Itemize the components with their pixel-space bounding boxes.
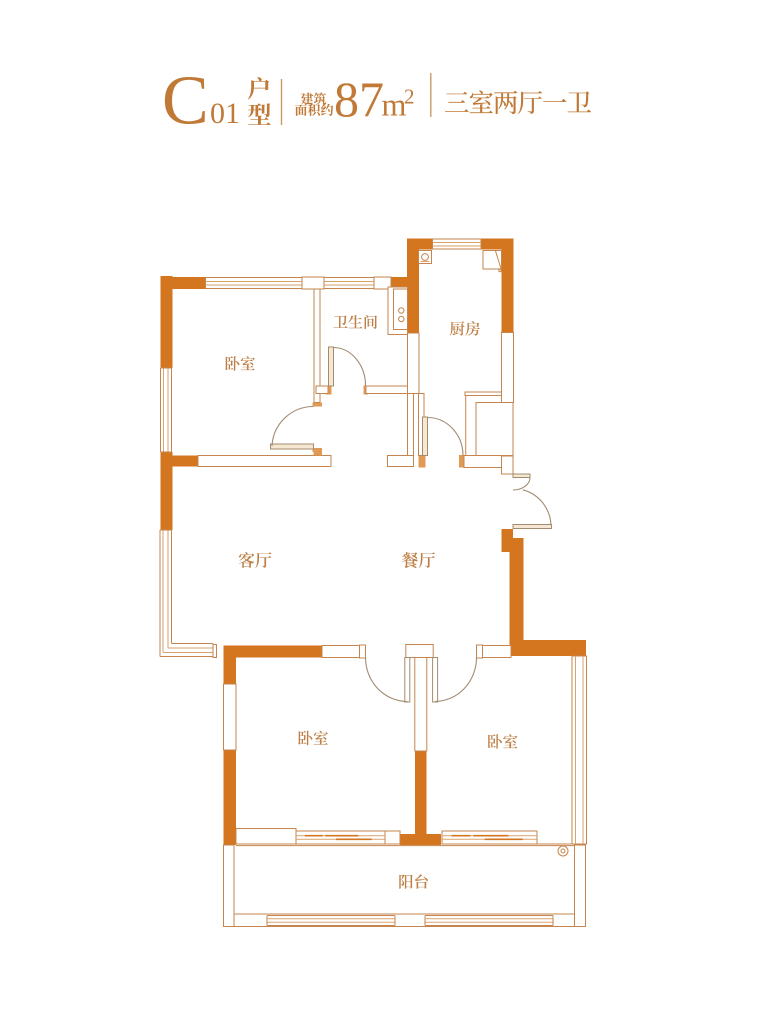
svg-text:2: 2 [404, 85, 415, 109]
svg-text:01: 01 [210, 97, 240, 130]
svg-text:87: 87 [334, 71, 384, 127]
svg-text:m: m [382, 87, 407, 123]
svg-text:C: C [162, 63, 209, 140]
